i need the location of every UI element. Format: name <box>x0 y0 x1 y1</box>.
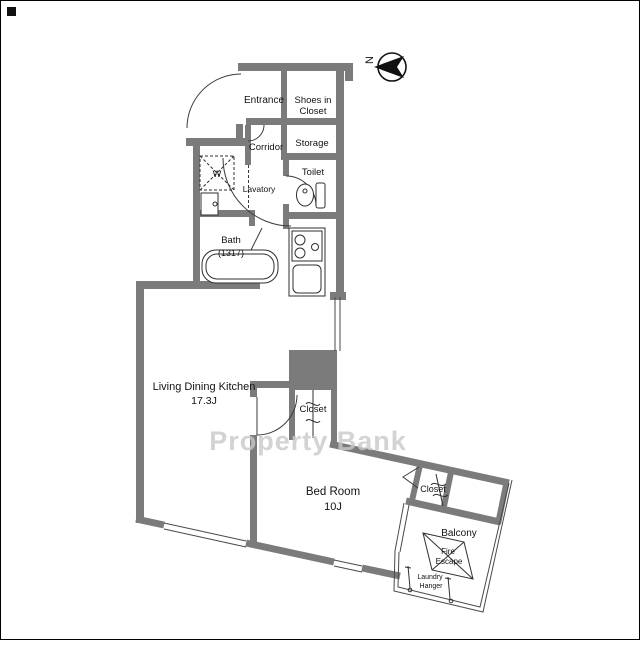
label-lavatory: Lavatory <box>243 184 276 194</box>
label-shoes-closet-2: Closet <box>300 106 327 117</box>
label-fire-escape-1: Fire <box>441 547 455 556</box>
corner-mark <box>7 7 16 16</box>
label-bedroom: Bed Room <box>306 486 360 498</box>
lavatory-sink <box>201 193 218 215</box>
compass-north-label: N <box>364 56 376 64</box>
label-entrance: Entrance <box>244 95 284 106</box>
label-ldk: Living Dining Kitchen <box>153 381 256 393</box>
label-storage: Storage <box>295 138 328 149</box>
label-laundry-hanger-2: Hanger <box>420 583 444 590</box>
watermark-text: Property Bank <box>209 426 407 456</box>
label-corridor: Corridor <box>249 142 283 153</box>
floor-plan-canvas: N Entrance Shoes in Closet Corridor Stor… <box>0 0 640 640</box>
label-bedroom-size: 10J <box>324 501 342 513</box>
label-bedroom-closet: Closet <box>420 484 446 494</box>
label-washing-machine: W <box>213 169 222 179</box>
label-bath-size: (1317) <box>218 248 244 258</box>
label-fire-escape-2: Escape <box>436 557 463 566</box>
label-balcony: Balcony <box>441 528 477 539</box>
floor-plan-page: N Entrance Shoes in Closet Corridor Stor… <box>0 0 640 640</box>
label-shoes-closet-1: Shoes in <box>295 95 332 106</box>
label-ldk-size: 17.3J <box>191 395 217 407</box>
label-toilet: Toilet <box>302 167 325 178</box>
label-laundry-hanger-1: Laundry <box>417 574 443 581</box>
label-hall-closet: Closet <box>300 404 327 415</box>
label-bath: Bath <box>221 235 241 246</box>
